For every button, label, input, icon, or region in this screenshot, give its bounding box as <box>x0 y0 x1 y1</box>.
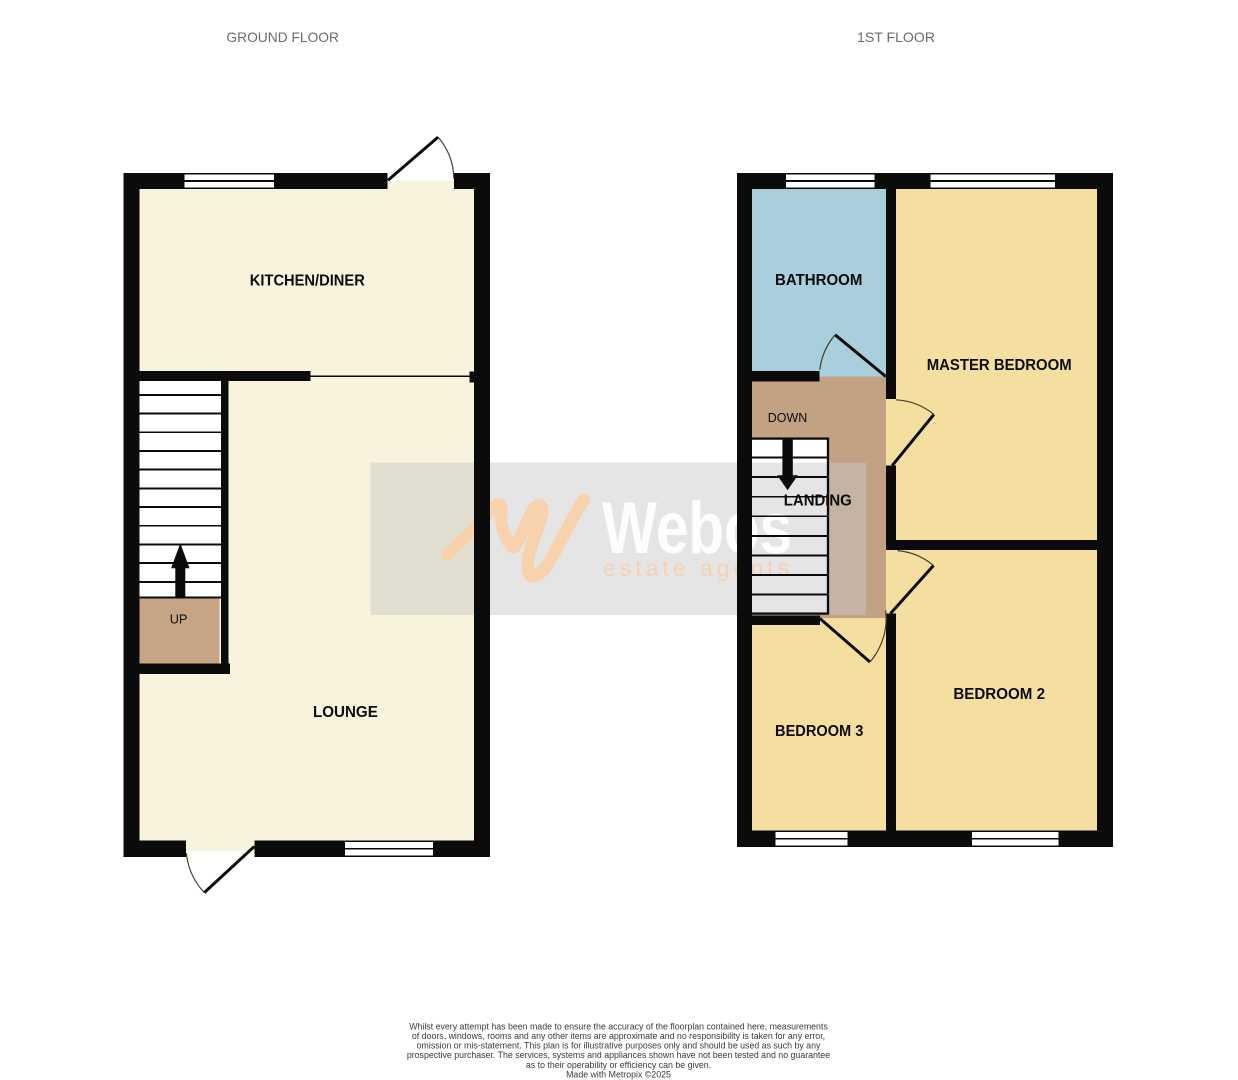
svg-text:of doors, windows, rooms and a: of doors, windows, rooms and any other i… <box>412 1031 825 1041</box>
svg-text:UP: UP <box>170 611 188 626</box>
svg-text:DOWN: DOWN <box>768 410 808 425</box>
svg-text:Made with Metropix ©2025: Made with Metropix ©2025 <box>566 1070 671 1080</box>
svg-text:MASTER BEDROOM: MASTER BEDROOM <box>927 357 1072 374</box>
svg-text:BATHROOM: BATHROOM <box>775 272 862 289</box>
svg-text:as to their operability or eff: as to their operability or efficiency ca… <box>526 1060 711 1070</box>
svg-text:GROUND FLOOR: GROUND FLOOR <box>226 29 339 45</box>
svg-text:omission or mis-statement. Thi: omission or mis-statement. This plan is … <box>417 1041 821 1051</box>
svg-text:LANDING: LANDING <box>784 492 852 509</box>
svg-text:KITCHEN/DINER: KITCHEN/DINER <box>250 272 365 289</box>
svg-text:prospective purchaser. The ser: prospective purchaser. The services, sys… <box>407 1050 830 1060</box>
svg-text:1ST FLOOR: 1ST FLOOR <box>857 29 935 45</box>
svg-text:LOUNGE: LOUNGE <box>313 704 378 721</box>
svg-text:Whilst every attempt has been: Whilst every attempt has been made to en… <box>409 1021 828 1031</box>
svg-text:BEDROOM 2: BEDROOM 2 <box>953 686 1045 703</box>
svg-text:BEDROOM 3: BEDROOM 3 <box>775 723 863 740</box>
